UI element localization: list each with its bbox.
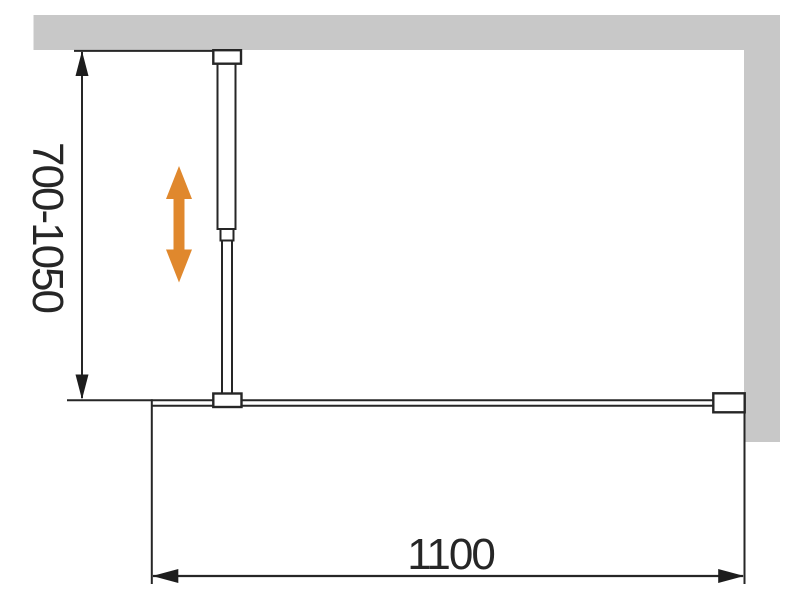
svg-text:1100: 1100 [407,530,494,579]
svg-text:700-1050: 700-1050 [23,142,72,312]
